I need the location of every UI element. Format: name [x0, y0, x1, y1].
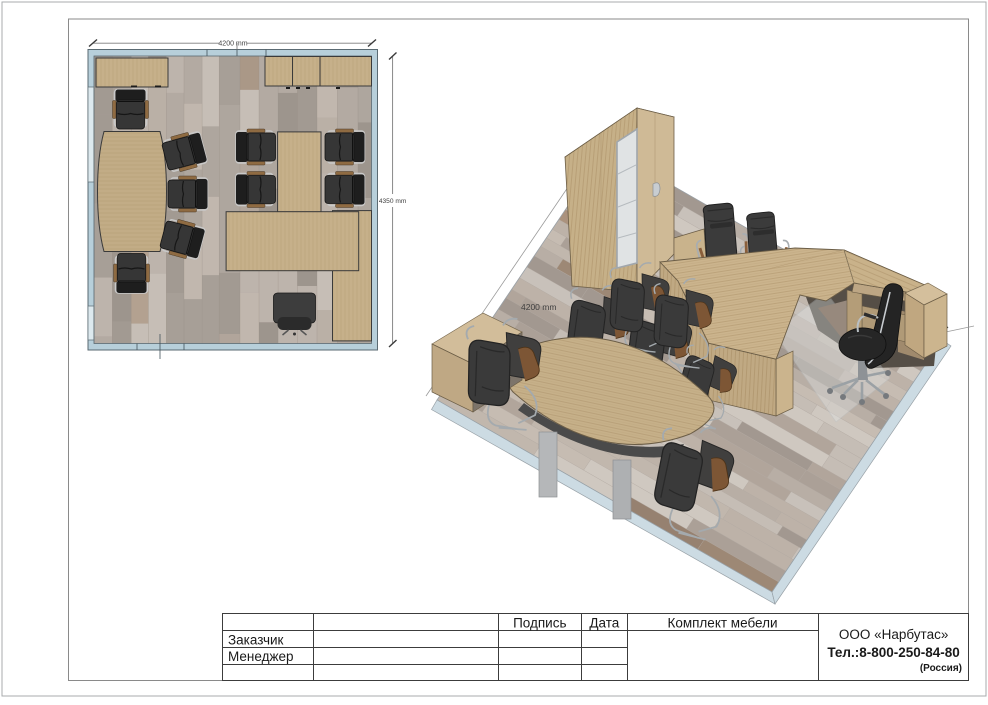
svg-text:4350 mm: 4350 mm	[379, 198, 407, 205]
svg-text:4200 mm: 4200 mm	[218, 41, 247, 48]
svg-text:Комплект мебели: Комплект мебели	[667, 616, 777, 631]
svg-text:Заказчик: Заказчик	[228, 632, 284, 647]
svg-text:Дата: Дата	[589, 616, 619, 631]
svg-text:Менеджер: Менеджер	[228, 649, 294, 664]
svg-text:(Россия): (Россия)	[920, 663, 962, 674]
svg-text:Тел.:8-800-250-84-80: Тел.:8-800-250-84-80	[827, 645, 959, 660]
svg-text:ООО «Нарбутас»: ООО «Нарбутас»	[839, 627, 949, 642]
svg-text:Подпись: Подпись	[513, 616, 566, 631]
svg-text:4200 mm: 4200 mm	[521, 302, 556, 312]
